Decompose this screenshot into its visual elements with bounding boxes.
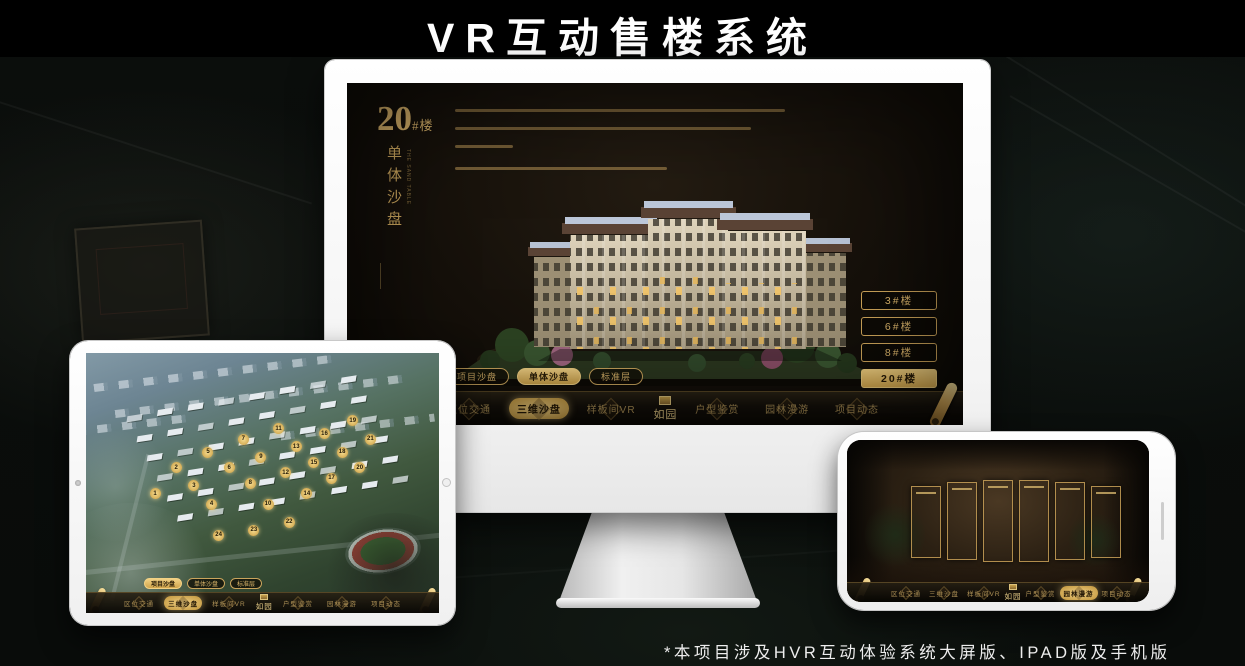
building-marker[interactable]: 20: [354, 462, 365, 473]
footnote-caption: *本项目涉及HVR互动体验系统大屏版、IPAD版及手机版: [664, 639, 1171, 663]
building-marker[interactable]: 10: [263, 499, 274, 510]
building-marker[interactable]: 14: [301, 488, 312, 499]
seal-icon: [659, 396, 671, 405]
tab-single-sandbox[interactable]: 单体沙盘: [517, 368, 581, 385]
building-marker[interactable]: 9: [255, 452, 266, 463]
building-marker[interactable]: 17: [326, 473, 337, 484]
building-marker[interactable]: 24: [213, 530, 224, 541]
tab-single-sandbox[interactable]: 单体沙盘: [187, 578, 225, 589]
unit-button-20[interactable]: 20#楼: [861, 369, 937, 388]
tab-standard-floor[interactable]: 标准层: [230, 578, 262, 589]
phone-device: 区位交通 三维沙盘 样板间VR 如园 户型鉴赏 园林漫游 项目动态: [838, 432, 1175, 610]
nav-item-location-traffic[interactable]: 区位交通: [120, 596, 158, 610]
building-3d-render: [442, 155, 872, 395]
gallery-panel[interactable]: [983, 480, 1013, 562]
nav-item-garden-tour[interactable]: 园林漫游: [323, 596, 361, 610]
building-marker[interactable]: 18: [337, 447, 348, 458]
nav-item-garden-tour[interactable]: 园林漫游: [757, 398, 817, 419]
building-marker[interactable]: 1: [150, 488, 161, 499]
seal-icon: [260, 594, 268, 600]
building-marker[interactable]: 15: [308, 457, 319, 468]
nav-item-floorplans[interactable]: 户型鉴赏: [279, 596, 317, 610]
building-marker[interactable]: 2: [171, 462, 182, 473]
building-marker[interactable]: 23: [248, 525, 259, 536]
tablet-camera: [75, 480, 81, 486]
tab-project-sandbox[interactable]: 项目沙盘: [144, 578, 182, 589]
nav-item-project-news[interactable]: 项目动态: [367, 596, 405, 610]
unit-subtitle: 单体沙盘: [383, 145, 404, 233]
nav-item-location-traffic[interactable]: 区位交通: [887, 586, 925, 600]
nav-item-3d-sandbox[interactable]: 三维沙盘: [925, 586, 963, 600]
unit-subtitle-en: THE SAND TABLE: [405, 149, 411, 205]
tablet-screen: 123456789101112131415161718192021222324 …: [86, 353, 439, 613]
unit-button-3[interactable]: 3#楼: [861, 291, 937, 310]
building-marker[interactable]: 7: [238, 434, 249, 445]
tablet-home-button[interactable]: [442, 478, 451, 487]
building-marker[interactable]: 4: [206, 499, 217, 510]
view-tab-group: 项目沙盘 单体沙盘 标准层: [445, 368, 651, 385]
phone-speaker: [1161, 502, 1164, 540]
view-tab-group: 项目沙盘 单体沙盘 标准层: [144, 578, 267, 589]
nav-item-showroom-vr[interactable]: 样板间VR: [963, 586, 1005, 600]
seal-icon: [1009, 584, 1017, 590]
nav-item-floorplans[interactable]: 户型鉴赏: [687, 398, 747, 419]
building-marker[interactable]: 11: [273, 423, 284, 434]
unit-suffix: #楼: [412, 118, 434, 133]
background-plaque: [74, 220, 210, 345]
building-marker[interactable]: 6: [224, 462, 235, 473]
gallery-panel[interactable]: [1055, 482, 1085, 560]
nav-item-showroom-vr[interactable]: 样板间VR: [208, 596, 250, 610]
unit-number: 20: [377, 99, 412, 138]
nav-item-project-news[interactable]: 项目动态: [1098, 586, 1136, 600]
building-marker[interactable]: 8: [245, 478, 256, 489]
description-text-line: [455, 145, 513, 148]
monitor-stand: [558, 512, 758, 604]
decorative-rule: [380, 263, 381, 289]
description-text-line: [455, 109, 785, 112]
unit-button-8[interactable]: 8#楼: [861, 343, 937, 362]
nav-item-project-news[interactable]: 项目动态: [827, 398, 887, 419]
brand-logo: 如园: [256, 594, 273, 612]
nav-item-3d-sandbox[interactable]: 三维沙盘: [164, 596, 202, 610]
unit-number-label: 20#楼: [377, 99, 434, 139]
building-marker[interactable]: 21: [365, 434, 376, 445]
description-text-line: [455, 127, 751, 130]
building-marker[interactable]: 13: [291, 441, 302, 452]
nav-item-showroom-vr[interactable]: 样板间VR: [579, 398, 644, 419]
gallery-panel[interactable]: [947, 482, 977, 560]
unit-button-6[interactable]: 6#楼: [861, 317, 937, 336]
gallery-panel[interactable]: [911, 486, 941, 558]
brand-logo: 如园: [1005, 584, 1022, 602]
poster-canvas: VR互动售楼系统 20#楼 单体沙盘 THE SAND TABLE: [0, 0, 1245, 666]
nav-item-floorplans[interactable]: 户型鉴赏: [1022, 586, 1060, 600]
tablet-navbar: 区位交通 三维沙盘 样板间VR 如园 户型鉴赏 园林漫游 项目动态: [86, 592, 439, 613]
nav-item-3d-sandbox[interactable]: 三维沙盘: [509, 398, 569, 419]
gallery-panel[interactable]: [1091, 486, 1121, 558]
tab-standard-floor[interactable]: 标准层: [589, 368, 643, 385]
tablet-device: 123456789101112131415161718192021222324 …: [70, 341, 455, 625]
gallery-panel[interactable]: [1019, 480, 1049, 562]
unit-button-group: 3#楼 6#楼 8#楼 20#楼: [861, 291, 937, 388]
tablet-markers: 123456789101112131415161718192021222324: [86, 353, 439, 613]
building-marker[interactable]: 5: [202, 447, 213, 458]
building-marker[interactable]: 3: [188, 480, 199, 491]
page-title: VR互动售楼系统: [0, 4, 1245, 64]
building-marker[interactable]: 16: [319, 428, 330, 439]
monitor-base: [556, 598, 760, 608]
phone-navbar: 区位交通 三维沙盘 样板间VR 如园 户型鉴赏 园林漫游 项目动态: [847, 582, 1149, 602]
building-marker[interactable]: 22: [284, 517, 295, 528]
building-marker[interactable]: 12: [280, 467, 291, 478]
building-marker[interactable]: 19: [347, 415, 358, 426]
brand-logo: 如园: [653, 396, 677, 422]
nav-item-garden-tour[interactable]: 园林漫游: [1060, 586, 1098, 600]
phone-screen: 区位交通 三维沙盘 样板间VR 如园 户型鉴赏 园林漫游 项目动态: [847, 440, 1149, 602]
